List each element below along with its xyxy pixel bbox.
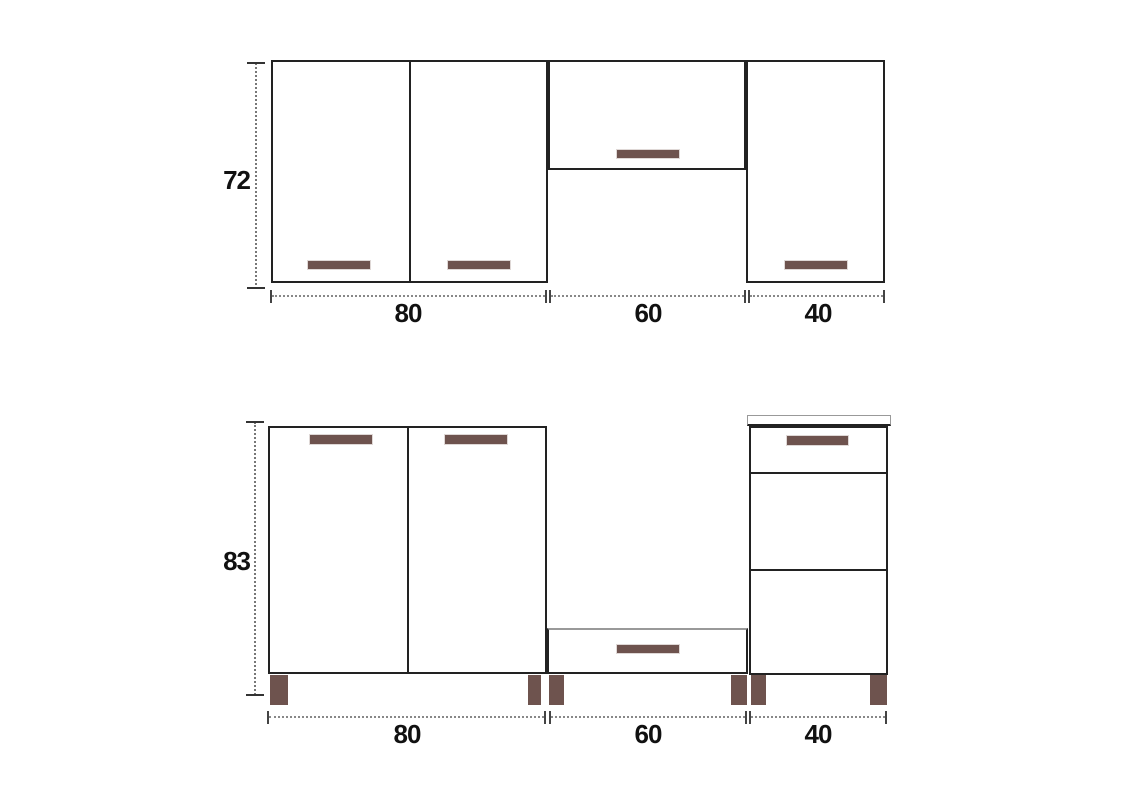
drawer-handle	[617, 645, 679, 653]
dimension-line	[254, 422, 256, 695]
base-cabinet-80	[268, 426, 547, 674]
wall-cabinet-80	[271, 60, 548, 283]
base-cabinet-40	[749, 426, 888, 675]
dimension-line	[269, 716, 544, 718]
door-handle	[448, 261, 510, 269]
dimension-label-width-80-lower: 80	[377, 721, 437, 747]
dimension-line	[551, 716, 745, 718]
dimension-label-width-40-upper: 40	[788, 300, 848, 326]
dimension-label-width-60-lower: 60	[618, 721, 678, 747]
drawer-handle	[787, 436, 848, 445]
cabinet-leg	[751, 675, 766, 705]
door-handle	[785, 261, 847, 269]
dimension-line	[751, 716, 885, 718]
kitchen-cabinet-elevation-diagram: 72 80 60 40	[0, 0, 1124, 796]
dimension-line	[750, 295, 883, 297]
dimension-label-height-upper: 72	[206, 167, 250, 193]
dimension-label-width-40-lower: 40	[788, 721, 848, 747]
dimension-label-height-lower: 83	[206, 548, 250, 574]
cabinet-leg	[528, 675, 541, 705]
dimension-line	[255, 63, 257, 289]
door-divider	[409, 62, 411, 281]
door-handle	[445, 435, 507, 444]
dimension-tick	[247, 287, 265, 289]
dimension-line	[551, 295, 744, 297]
base-drawer-60	[547, 628, 748, 674]
door-handle	[308, 261, 370, 269]
dimension-tick	[247, 62, 265, 64]
dimension-tick	[246, 421, 264, 423]
wall-cabinet-60-flap	[548, 60, 746, 170]
worktop-panel	[747, 415, 891, 426]
cabinet-leg	[870, 675, 887, 705]
cabinet-leg	[549, 675, 564, 705]
wall-cabinet-40	[746, 60, 885, 283]
dimension-tick	[246, 694, 264, 696]
dimension-label-width-60-upper: 60	[618, 300, 678, 326]
door-handle	[310, 435, 372, 444]
cabinet-leg	[731, 675, 747, 705]
dimension-line	[272, 295, 545, 297]
drawer-divider	[751, 472, 886, 474]
cabinet-leg	[270, 675, 288, 705]
drawer-divider	[751, 569, 886, 571]
dimension-label-width-80-upper: 80	[378, 300, 438, 326]
door-handle	[617, 150, 679, 158]
door-divider	[407, 428, 409, 672]
